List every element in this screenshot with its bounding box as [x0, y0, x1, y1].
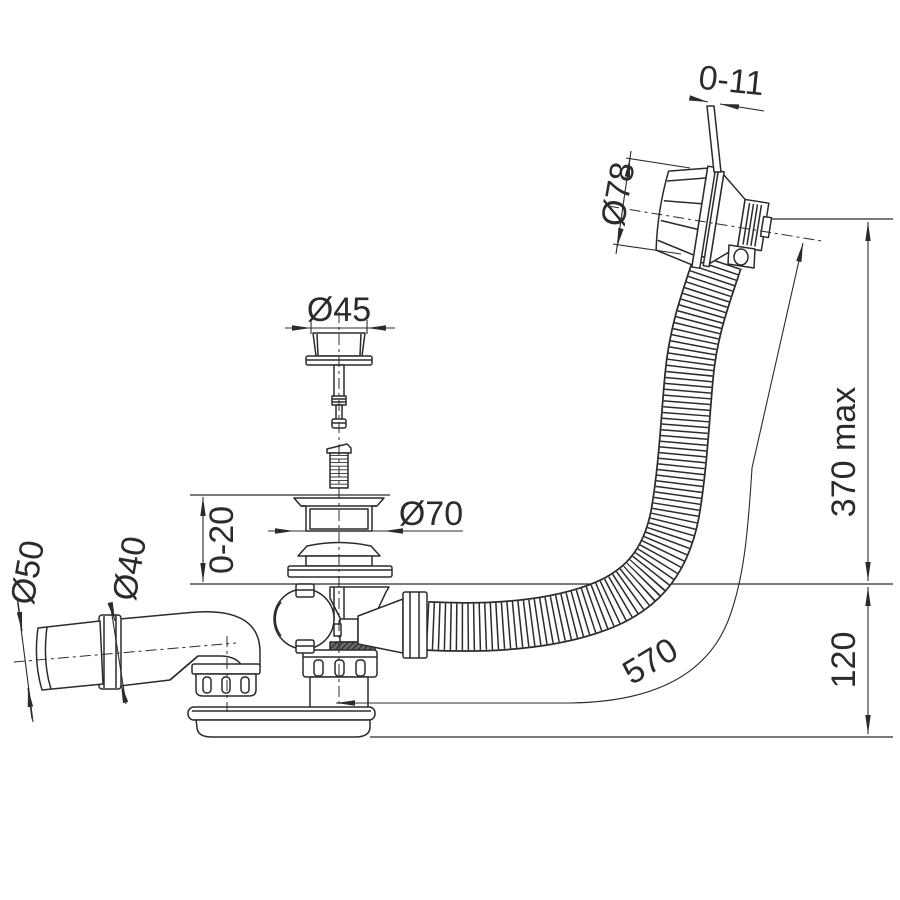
hose-nut — [403, 592, 427, 658]
outlet-boss — [340, 619, 358, 642]
label-hose-length: 570 — [616, 631, 684, 693]
plug-stem — [332, 365, 346, 428]
overflow-knob — [652, 160, 778, 278]
clamp-screw — [734, 249, 748, 265]
outlet-pipe-assembly — [36, 612, 260, 696]
label-rim-thickness: 0-20 — [203, 506, 241, 574]
dim-outlet-end-diameter — [17, 597, 33, 722]
outlet-bolt — [334, 624, 341, 636]
drawing-sheet: 0-11 Ø78 Ø45 Ø70 0-20 Ø50 Ø40 370 max 12… — [0, 0, 900, 900]
base-cup — [196, 720, 370, 737]
cleanout-dome — [274, 584, 334, 653]
label-overflow-height: 370 max — [825, 387, 863, 517]
label-outlet-pipe-diameter: Ø40 — [106, 534, 155, 604]
dimension-labels: 0-11 Ø78 Ø45 Ø70 0-20 Ø50 Ø40 370 max 12… — [4, 59, 863, 693]
overflow-pin — [707, 106, 721, 172]
label-trap-height: 120 — [825, 632, 863, 689]
base-rim — [188, 707, 375, 720]
hose-clamp — [728, 245, 755, 268]
elbow-nut — [192, 664, 260, 696]
technical-drawing: 0-11 Ø78 Ø45 Ø70 0-20 Ø50 Ø40 370 max 12… — [0, 0, 900, 900]
label-plug-cap-diameter: Ø45 — [307, 291, 371, 329]
reference-lines — [190, 219, 893, 737]
trap-top-nut — [303, 650, 377, 677]
label-flange-diameter: Ø70 — [399, 495, 463, 533]
label-outlet-end-diameter: Ø50 — [4, 538, 53, 608]
label-pin-stroke: 0-11 — [697, 59, 766, 104]
flexible-hose — [427, 261, 718, 627]
drain-plug-parts — [288, 333, 392, 577]
label-knob-diameter: Ø78 — [594, 159, 643, 229]
backing-plate — [288, 566, 392, 577]
trap-base — [188, 707, 375, 737]
